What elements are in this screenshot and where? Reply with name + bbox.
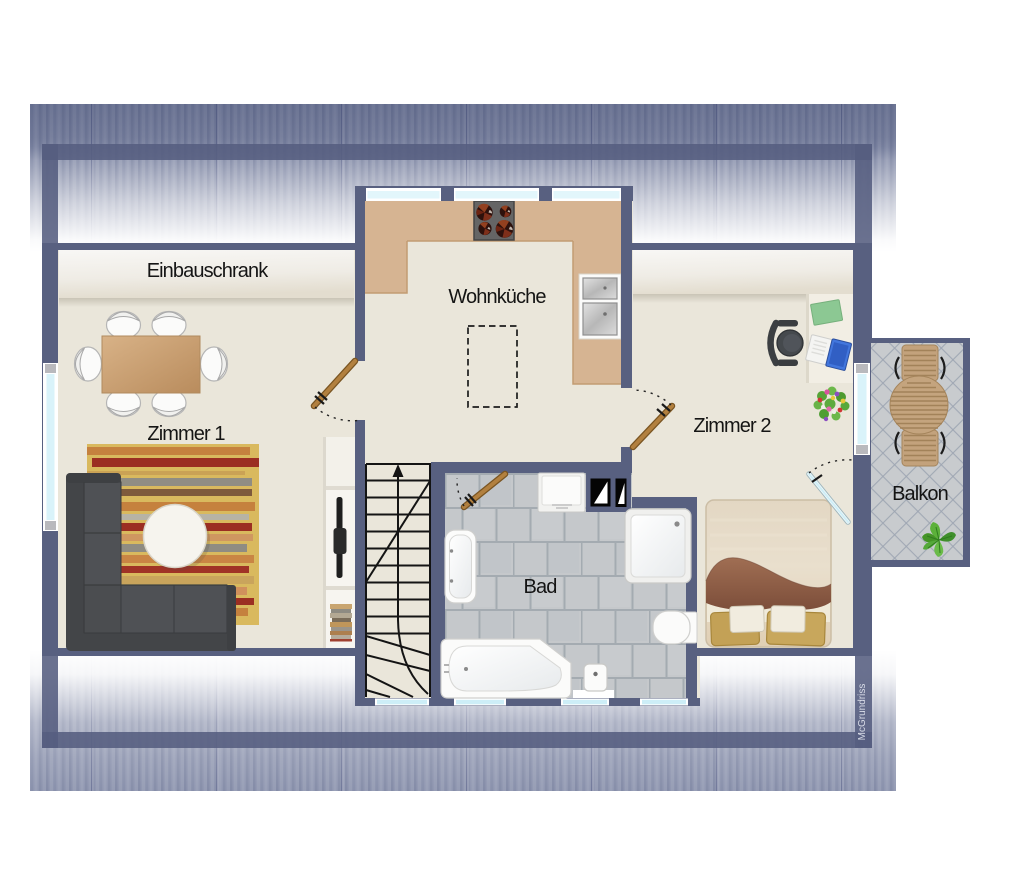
svg-text:Balkon: Balkon <box>892 483 948 505</box>
svg-text:Einbauschrank: Einbauschrank <box>147 260 270 282</box>
svg-text:Zimmer 2: Zimmer 2 <box>693 415 771 437</box>
svg-text:Wohnküche: Wohnküche <box>448 286 546 308</box>
svg-text:Bad: Bad <box>524 576 557 598</box>
svg-text:Zimmer 1: Zimmer 1 <box>147 423 225 445</box>
svg-text:McGrundriss: McGrundriss <box>857 684 868 741</box>
